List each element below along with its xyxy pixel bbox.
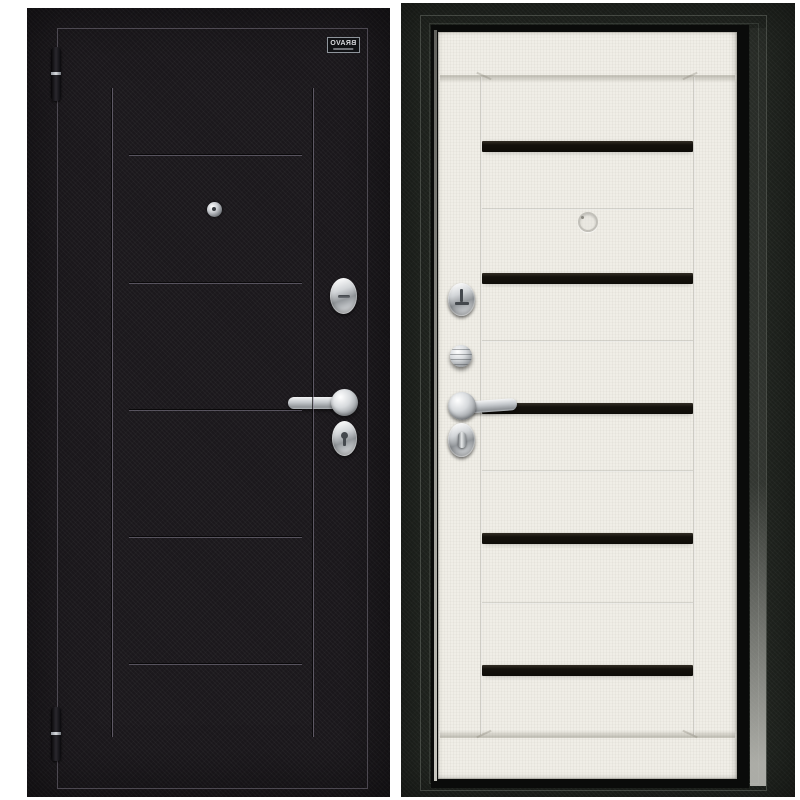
deadbolt-slot-horizontal <box>455 302 469 305</box>
panel-groove <box>482 470 693 472</box>
door-handle-rose <box>448 392 476 420</box>
thumbturn-tab <box>458 432 466 448</box>
brand-plaque-subtext-bar <box>334 48 354 50</box>
deadbolt-cover <box>448 283 475 316</box>
glass-insert <box>482 533 693 544</box>
exterior-view-photo: BRAVO <box>27 8 390 797</box>
door-edge-highlight <box>434 30 437 781</box>
door-handle-rose <box>331 389 358 416</box>
brand-plaque: BRAVO <box>327 37 360 53</box>
deadbolt-slot-vertical <box>460 289 463 302</box>
peephole <box>207 202 222 217</box>
interior-door-leaf <box>438 32 737 779</box>
door-product-image: BRAVO <box>0 0 800 800</box>
panel-groove <box>482 208 693 210</box>
panel-groove-horizontal <box>129 410 302 411</box>
cylinder-slot <box>338 295 350 298</box>
brand-plaque-text: BRAVO <box>330 40 356 47</box>
hinge <box>51 47 61 101</box>
keyhole-icon <box>341 432 348 439</box>
glass-insert <box>482 665 693 676</box>
right-stile-line <box>693 77 695 735</box>
panel-groove-horizontal <box>129 537 302 538</box>
keyhole-cover <box>332 421 357 456</box>
panel-groove-horizontal <box>129 283 302 284</box>
panel-groove <box>482 340 693 342</box>
lock-cylinder-cover <box>330 278 357 314</box>
peephole <box>578 212 598 232</box>
glass-insert <box>482 273 693 284</box>
hinge <box>51 707 61 761</box>
panel-groove <box>482 602 693 604</box>
panel-groove-vertical <box>112 88 113 737</box>
glass-insert <box>482 141 693 152</box>
deadbolt-glyph <box>455 289 469 311</box>
panel-groove-horizontal <box>129 155 302 156</box>
panel-groove-horizontal <box>129 664 302 665</box>
door-jamb-reveal <box>750 28 766 786</box>
panel-groove-vertical <box>313 88 314 737</box>
thumbturn-knob <box>450 345 472 367</box>
thumbturn-cover <box>448 423 475 457</box>
brand-plaque-content: BRAVO <box>330 40 356 50</box>
interior-view-photo <box>401 3 795 797</box>
